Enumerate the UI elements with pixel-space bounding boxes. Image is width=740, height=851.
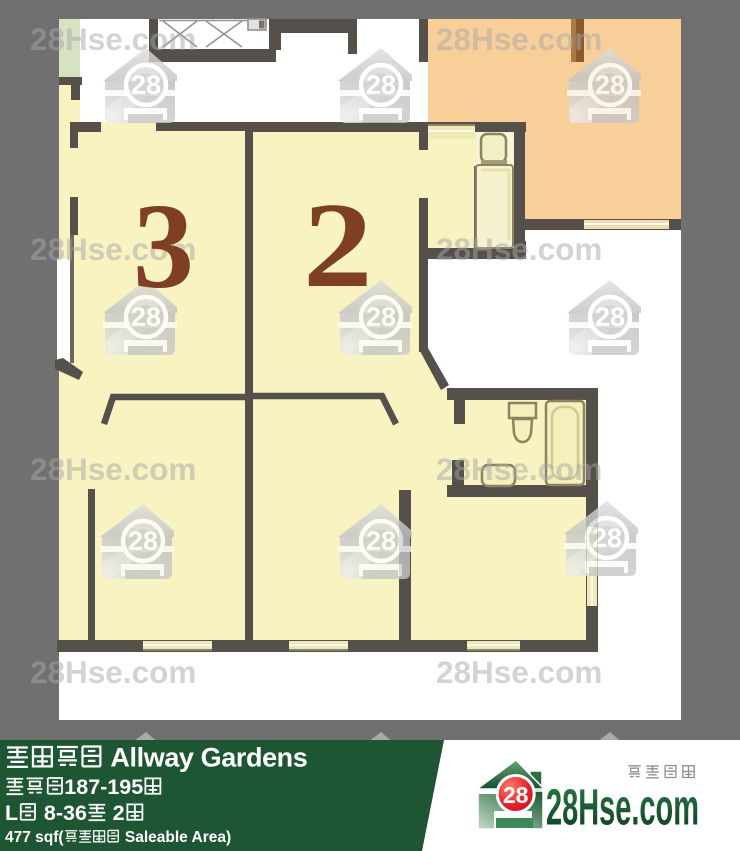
svg-text:28: 28: [503, 782, 529, 808]
svg-text:28Hse.com: 28Hse.com: [546, 779, 699, 836]
